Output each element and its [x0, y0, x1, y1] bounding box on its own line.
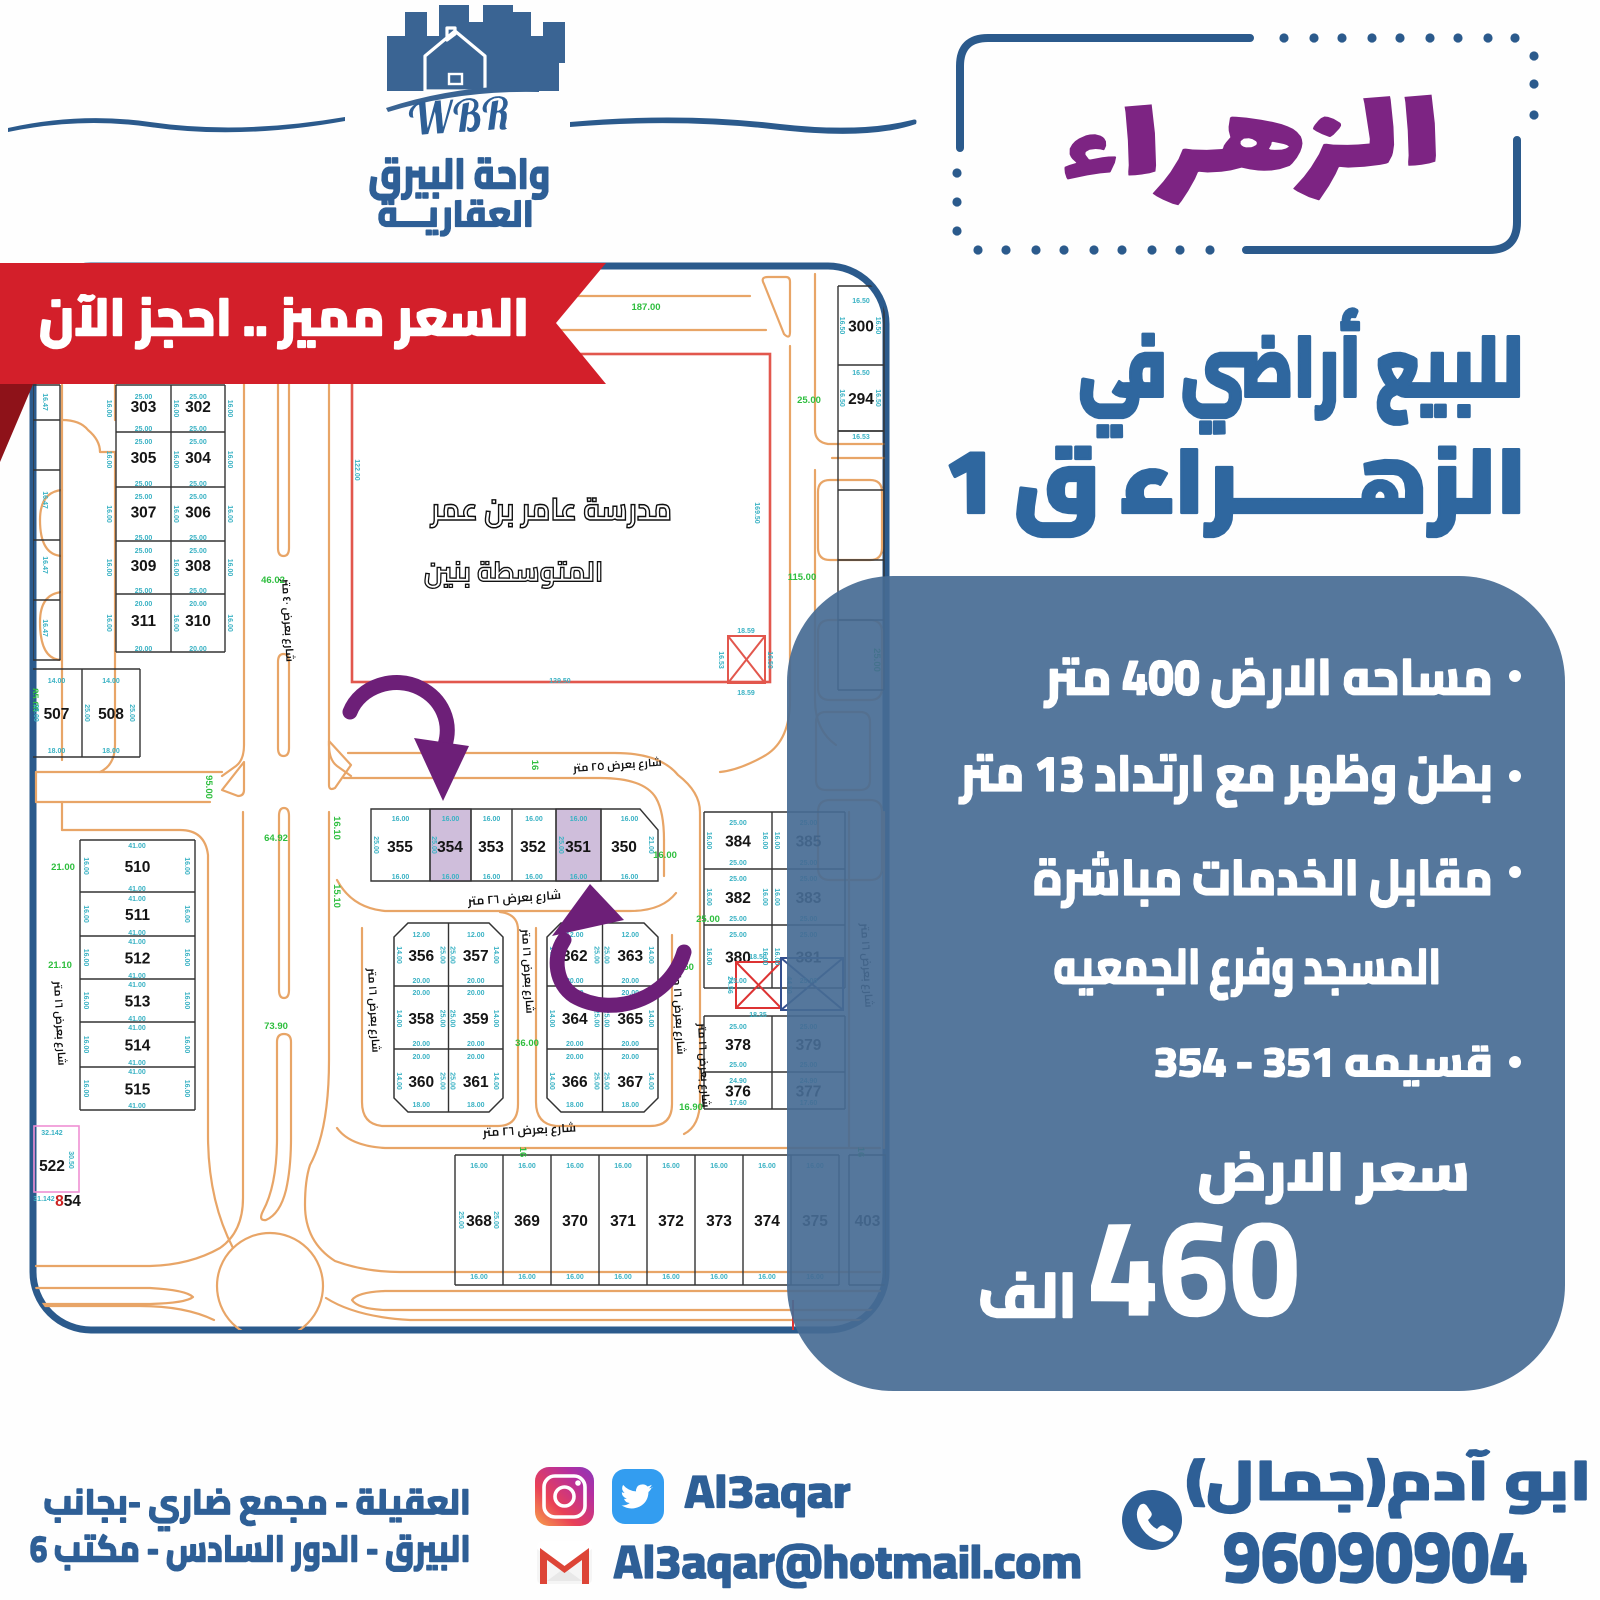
svg-text:16.50: 16.50: [852, 370, 870, 377]
svg-text:18.00: 18.00: [621, 1102, 639, 1109]
svg-text:854: 854: [55, 1193, 81, 1210]
svg-text:16.00: 16.00: [392, 874, 410, 881]
svg-text:16.00: 16.00: [226, 559, 233, 577]
svg-text:16.00: 16.00: [621, 816, 639, 823]
svg-text:16.00: 16.00: [172, 614, 179, 632]
svg-text:352: 352: [520, 839, 546, 856]
svg-text:25.00: 25.00: [449, 1072, 456, 1090]
svg-text:20.00: 20.00: [467, 990, 485, 997]
svg-text:25.00: 25.00: [189, 426, 207, 433]
svg-text:14.00: 14.00: [647, 946, 654, 964]
svg-text:310: 310: [185, 613, 211, 630]
svg-text:41.00: 41.00: [128, 973, 146, 980]
svg-text:18.00: 18.00: [412, 1102, 430, 1109]
svg-text:16.47: 16.47: [41, 619, 48, 637]
svg-text:507: 507: [44, 706, 70, 723]
svg-text:14.00: 14.00: [548, 1010, 555, 1028]
svg-text:187.00: 187.00: [631, 302, 660, 313]
svg-text:358: 358: [408, 1011, 434, 1028]
svg-text:25.00: 25.00: [135, 535, 153, 542]
svg-text:15.10: 15.10: [331, 884, 342, 908]
svg-text:25.00: 25.00: [83, 704, 90, 722]
svg-text:25.00: 25.00: [696, 914, 720, 925]
svg-text:522: 522: [39, 1158, 65, 1175]
svg-text:41.00: 41.00: [128, 1016, 146, 1023]
svg-text:122.00: 122.00: [353, 459, 360, 481]
svg-text:16.00: 16.00: [570, 816, 588, 823]
svg-text:16.00: 16.00: [82, 1036, 89, 1054]
svg-text:18.59: 18.59: [737, 628, 755, 635]
svg-text:95.00: 95.00: [203, 775, 214, 799]
svg-text:25.00: 25.00: [729, 1062, 747, 1069]
svg-text:359: 359: [463, 1011, 489, 1028]
svg-text:16.00: 16.00: [105, 400, 112, 418]
svg-text:350: 350: [611, 839, 637, 856]
svg-text:16.00: 16.00: [705, 832, 712, 850]
svg-text:16.00: 16.00: [470, 1163, 488, 1170]
svg-text:16.00: 16.00: [172, 451, 179, 469]
svg-text:25.00: 25.00: [189, 394, 207, 401]
svg-text:300: 300: [848, 319, 874, 336]
svg-text:16.00: 16.00: [442, 816, 460, 823]
svg-text:373: 373: [706, 1213, 732, 1230]
svg-text:356: 356: [408, 948, 434, 965]
svg-text:139.50: 139.50: [549, 678, 571, 685]
svg-text:16.00: 16.00: [183, 992, 190, 1010]
svg-text:20.00: 20.00: [621, 1054, 639, 1061]
svg-text:18.00: 18.00: [102, 748, 120, 755]
svg-text:16.00: 16.00: [105, 505, 112, 523]
svg-text:41.00: 41.00: [128, 886, 146, 893]
svg-text:41.00: 41.00: [128, 843, 146, 850]
svg-text:357: 357: [463, 948, 489, 965]
svg-text:16.00: 16.00: [758, 1163, 776, 1170]
svg-text:364: 364: [562, 1011, 588, 1028]
svg-text:306: 306: [185, 504, 211, 521]
svg-text:36.00: 36.00: [515, 1038, 539, 1049]
svg-text:361: 361: [463, 1074, 489, 1091]
svg-text:20.00: 20.00: [467, 978, 485, 985]
svg-text:16.00: 16.00: [226, 400, 233, 418]
svg-text:354: 354: [437, 839, 463, 856]
svg-text:20.00: 20.00: [621, 978, 639, 985]
svg-text:512: 512: [125, 951, 151, 968]
svg-text:25.00: 25.00: [729, 1024, 747, 1031]
svg-text:20.00: 20.00: [412, 978, 430, 985]
svg-text:366: 366: [562, 1074, 588, 1091]
svg-text:16.00: 16.00: [705, 888, 712, 906]
svg-text:370: 370: [562, 1213, 588, 1230]
svg-text:64.92: 64.92: [264, 833, 288, 844]
svg-text:14.00: 14.00: [102, 678, 120, 685]
svg-text:18.59: 18.59: [737, 690, 755, 697]
svg-text:24.56: 24.56: [726, 976, 733, 994]
svg-text:16.00: 16.00: [758, 1274, 776, 1281]
svg-text:25.00: 25.00: [135, 439, 153, 446]
svg-text:16.47: 16.47: [41, 393, 48, 411]
svg-text:25.00: 25.00: [372, 836, 379, 854]
svg-text:25.00: 25.00: [449, 1010, 456, 1028]
svg-text:16: 16: [517, 1147, 528, 1158]
svg-text:18.00: 18.00: [566, 1102, 584, 1109]
svg-text:378: 378: [725, 1037, 751, 1054]
svg-text:16.53: 16.53: [717, 651, 724, 669]
svg-text:515: 515: [125, 1082, 151, 1099]
svg-text:513: 513: [125, 994, 151, 1011]
svg-text:16.00: 16.00: [105, 614, 112, 632]
svg-text:16.50: 16.50: [766, 651, 773, 669]
svg-text:41.00: 41.00: [128, 896, 146, 903]
svg-text:25.00: 25.00: [189, 588, 207, 595]
svg-text:16.90: 16.90: [679, 1102, 703, 1113]
svg-text:25.00: 25.00: [729, 932, 747, 939]
svg-text:25.00: 25.00: [135, 588, 153, 595]
svg-text:16.50: 16.50: [874, 317, 881, 335]
svg-text:16.00: 16.00: [183, 905, 190, 923]
svg-text:308: 308: [185, 558, 211, 575]
svg-text:353: 353: [478, 839, 504, 856]
svg-text:16.00: 16.00: [653, 850, 677, 861]
svg-text:20.00: 20.00: [412, 990, 430, 997]
svg-text:25.00: 25.00: [135, 481, 153, 488]
svg-text:25.00: 25.00: [729, 916, 747, 923]
svg-text:16.00: 16.00: [82, 949, 89, 967]
svg-text:16.10: 16.10: [331, 816, 342, 840]
svg-text:16.00: 16.00: [183, 1080, 190, 1098]
svg-text:18.00: 18.00: [467, 1102, 485, 1109]
svg-text:25.00: 25.00: [593, 1010, 600, 1028]
svg-text:514: 514: [125, 1038, 151, 1055]
svg-text:311: 311: [131, 613, 156, 630]
svg-text:363: 363: [617, 948, 643, 965]
svg-text:14.00: 14.00: [647, 1072, 654, 1090]
svg-text:41.00: 41.00: [128, 1069, 146, 1076]
svg-text:351: 351: [565, 839, 591, 856]
svg-text:368: 368: [466, 1213, 492, 1230]
svg-text:25.00: 25.00: [492, 1211, 499, 1229]
svg-text:294: 294: [848, 391, 874, 408]
svg-text:16.00: 16.00: [705, 948, 712, 966]
svg-text:25.00: 25.00: [32, 704, 39, 722]
svg-text:169.50: 169.50: [753, 502, 760, 524]
svg-text:16.00: 16.00: [183, 1036, 190, 1054]
svg-text:25.00: 25.00: [189, 494, 207, 501]
svg-text:14.00: 14.00: [395, 946, 402, 964]
svg-text:25.00: 25.00: [189, 535, 207, 542]
svg-text:16.00: 16.00: [105, 559, 112, 577]
svg-text:376: 376: [725, 1084, 751, 1101]
svg-text:41.00: 41.00: [128, 982, 146, 989]
svg-text:20.00: 20.00: [467, 1041, 485, 1048]
svg-text:20.00: 20.00: [412, 1054, 430, 1061]
svg-text:25.00: 25.00: [449, 946, 456, 964]
svg-text:32.142: 32.142: [41, 1130, 63, 1137]
svg-text:20.00: 20.00: [135, 601, 153, 608]
svg-text:17.60: 17.60: [729, 1100, 747, 1107]
svg-text:16.00: 16.00: [761, 888, 768, 906]
svg-text:16.00: 16.00: [773, 888, 780, 906]
svg-text:20.00: 20.00: [412, 1041, 430, 1048]
svg-text:304: 304: [185, 450, 211, 467]
svg-text:20.00: 20.00: [135, 646, 153, 653]
svg-text:16.00: 16.00: [773, 948, 780, 966]
svg-text:25.00: 25.00: [729, 876, 747, 883]
svg-text:21.10: 21.10: [48, 960, 72, 971]
svg-text:382: 382: [725, 890, 751, 907]
svg-text:16.00: 16.00: [614, 1163, 632, 1170]
svg-text:25.00: 25.00: [729, 860, 747, 867]
svg-text:25.00: 25.00: [430, 836, 437, 854]
svg-text:511: 511: [125, 907, 150, 924]
svg-text:16.00: 16.00: [570, 874, 588, 881]
svg-text:20.00: 20.00: [566, 1054, 584, 1061]
svg-text:12.00: 12.00: [412, 932, 430, 939]
svg-text:20.00: 20.00: [189, 646, 207, 653]
svg-text:374: 374: [754, 1213, 780, 1230]
svg-text:25.00: 25.00: [189, 548, 207, 555]
svg-text:372: 372: [658, 1213, 684, 1230]
svg-text:16.00: 16.00: [525, 874, 543, 881]
svg-text:14.00: 14.00: [492, 1072, 499, 1090]
svg-text:14.00: 14.00: [647, 1010, 654, 1028]
svg-text:16.00: 16.00: [82, 1080, 89, 1098]
svg-text:14.00: 14.00: [395, 1010, 402, 1028]
svg-text:25.00: 25.00: [128, 704, 135, 722]
svg-text:16.00: 16.00: [172, 400, 179, 418]
svg-text:25.00: 25.00: [603, 946, 610, 964]
svg-text:46.02: 46.02: [261, 575, 285, 586]
svg-text:14.00: 14.00: [395, 1072, 402, 1090]
svg-text:25.00: 25.00: [439, 1072, 446, 1090]
svg-text:41.00: 41.00: [128, 1025, 146, 1032]
svg-text:12.00: 12.00: [467, 932, 485, 939]
svg-text:16: 16: [529, 760, 540, 771]
svg-text:16.00: 16.00: [614, 1274, 632, 1281]
svg-text:16.00: 16.00: [226, 505, 233, 523]
svg-text:41.00: 41.00: [128, 1060, 146, 1067]
svg-text:309: 309: [131, 558, 157, 575]
svg-text:25.00: 25.00: [439, 946, 446, 964]
svg-text:16.47: 16.47: [41, 491, 48, 509]
svg-text:25.00: 25.00: [135, 394, 153, 401]
svg-text:21.00: 21.00: [647, 836, 654, 854]
svg-text:303: 303: [131, 399, 157, 416]
svg-text:16.50: 16.50: [838, 317, 845, 335]
svg-text:371: 371: [610, 1213, 636, 1230]
svg-text:25.00: 25.00: [457, 1211, 464, 1229]
svg-text:508: 508: [98, 706, 124, 723]
svg-text:115.00: 115.00: [788, 572, 817, 583]
svg-text:510: 510: [125, 859, 151, 876]
svg-text:16.00: 16.00: [470, 1274, 488, 1281]
svg-text:16.00: 16.00: [662, 1163, 680, 1170]
svg-text:360: 360: [408, 1074, 434, 1091]
svg-text:25.00: 25.00: [135, 426, 153, 433]
svg-text:30.50: 30.50: [67, 1151, 74, 1169]
svg-text:16.00: 16.00: [710, 1163, 728, 1170]
svg-text:365: 365: [617, 1011, 643, 1028]
svg-text:305: 305: [131, 450, 157, 467]
svg-text:25.00: 25.00: [135, 494, 153, 501]
svg-text:25.00: 25.00: [189, 481, 207, 488]
svg-text:16.00: 16.00: [525, 816, 543, 823]
svg-text:18.35: 18.35: [749, 1012, 767, 1019]
svg-text:16.50: 16.50: [852, 298, 870, 305]
svg-text:16.00: 16.00: [761, 832, 768, 850]
svg-text:16.00: 16.00: [105, 451, 112, 469]
svg-text:12.00: 12.00: [621, 932, 639, 939]
svg-text:25.00: 25.00: [135, 548, 153, 555]
svg-text:25.00: 25.00: [593, 1072, 600, 1090]
svg-text:16.00: 16.00: [518, 1274, 536, 1281]
svg-text:16.00: 16.00: [82, 857, 89, 875]
svg-text:16.00: 16.00: [710, 1274, 728, 1281]
svg-text:25.00: 25.00: [557, 836, 564, 854]
svg-text:25.00: 25.00: [797, 395, 821, 406]
svg-text:16.50: 16.50: [874, 389, 881, 407]
svg-text:14.00: 14.00: [492, 946, 499, 964]
svg-text:20.00: 20.00: [467, 1054, 485, 1061]
svg-text:367: 367: [617, 1074, 643, 1091]
svg-text:25.00: 25.00: [729, 820, 747, 827]
svg-text:14.00: 14.00: [548, 1072, 555, 1090]
svg-text:31.142: 31.142: [33, 1196, 55, 1203]
svg-text:18.50: 18.50: [749, 954, 767, 961]
svg-text:21.00: 21.00: [51, 862, 75, 873]
svg-text:16.53: 16.53: [852, 434, 870, 441]
svg-text:25.00: 25.00: [439, 1010, 446, 1028]
svg-text:16.00: 16.00: [483, 874, 501, 881]
svg-text:384: 384: [725, 834, 751, 851]
svg-text:16.00: 16.00: [226, 614, 233, 632]
svg-text:16.00: 16.00: [483, 816, 501, 823]
svg-text:369: 369: [514, 1213, 540, 1230]
svg-text:25.00: 25.00: [593, 946, 600, 964]
svg-text:16.00: 16.00: [392, 816, 410, 823]
svg-text:14.00: 14.00: [492, 1010, 499, 1028]
svg-text:16.00: 16.00: [442, 874, 460, 881]
svg-text:18.00: 18.00: [48, 748, 66, 755]
svg-text:16.00: 16.00: [662, 1274, 680, 1281]
svg-text:16.00: 16.00: [226, 451, 233, 469]
svg-text:25.00: 25.00: [189, 439, 207, 446]
svg-text:73.90: 73.90: [264, 1021, 288, 1032]
svg-text:20.00: 20.00: [189, 601, 207, 608]
svg-text:41.00: 41.00: [128, 939, 146, 946]
svg-text:355: 355: [387, 839, 413, 856]
svg-text:307: 307: [131, 504, 157, 521]
svg-text:16.00: 16.00: [566, 1163, 584, 1170]
svg-text:16.00: 16.00: [82, 992, 89, 1010]
svg-text:25.00: 25.00: [603, 1072, 610, 1090]
svg-text:24.90: 24.90: [729, 1078, 747, 1085]
svg-text:16.47: 16.47: [41, 556, 48, 574]
svg-text:302: 302: [185, 399, 211, 416]
svg-text:16.00: 16.00: [566, 1274, 584, 1281]
svg-text:16.00: 16.00: [172, 559, 179, 577]
svg-text:16.00: 16.00: [183, 857, 190, 875]
svg-text:16.50: 16.50: [838, 389, 845, 407]
svg-text:16.00: 16.00: [773, 832, 780, 850]
svg-text:20.00: 20.00: [566, 1041, 584, 1048]
svg-text:16.00: 16.00: [82, 905, 89, 923]
svg-text:16.00: 16.00: [183, 949, 190, 967]
svg-text:41.00: 41.00: [128, 1103, 146, 1110]
svg-text:16.00: 16.00: [518, 1163, 536, 1170]
svg-text:41.00: 41.00: [128, 930, 146, 937]
svg-text:14.00: 14.00: [48, 678, 66, 685]
svg-text:16.00: 16.00: [172, 505, 179, 523]
svg-text:20.00: 20.00: [621, 1041, 639, 1048]
svg-text:16.00: 16.00: [621, 874, 639, 881]
